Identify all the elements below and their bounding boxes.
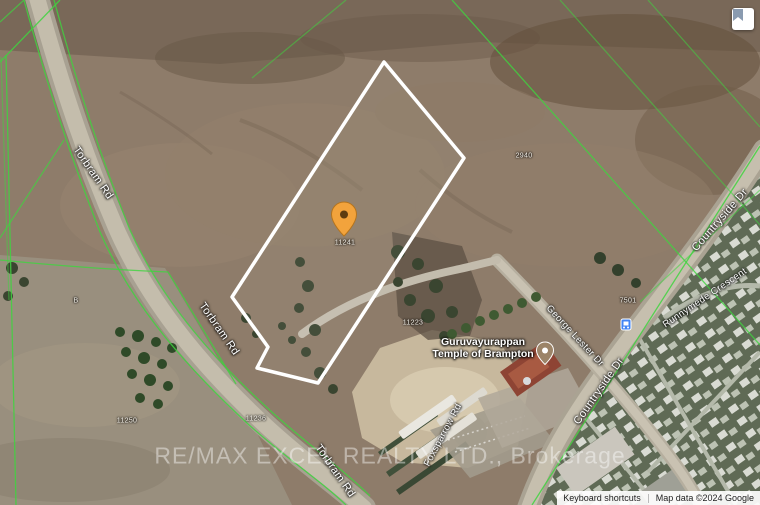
keyboard-shortcuts-link[interactable]: Keyboard shortcuts (563, 493, 641, 503)
transit-stop-icon[interactable] (621, 319, 631, 330)
map-data-credit: Map data ©2024 Google (656, 493, 754, 503)
map-control-button[interactable] (732, 8, 754, 30)
bookmark-icon (732, 8, 744, 22)
map-imagery (0, 0, 760, 505)
attribution-divider (648, 494, 649, 503)
map-attribution-bar: Keyboard shortcuts Map data ©2024 Google (557, 491, 760, 505)
satellite-map[interactable]: Torbram Rd Torbram Rd Torbram Rd Country… (0, 0, 760, 505)
